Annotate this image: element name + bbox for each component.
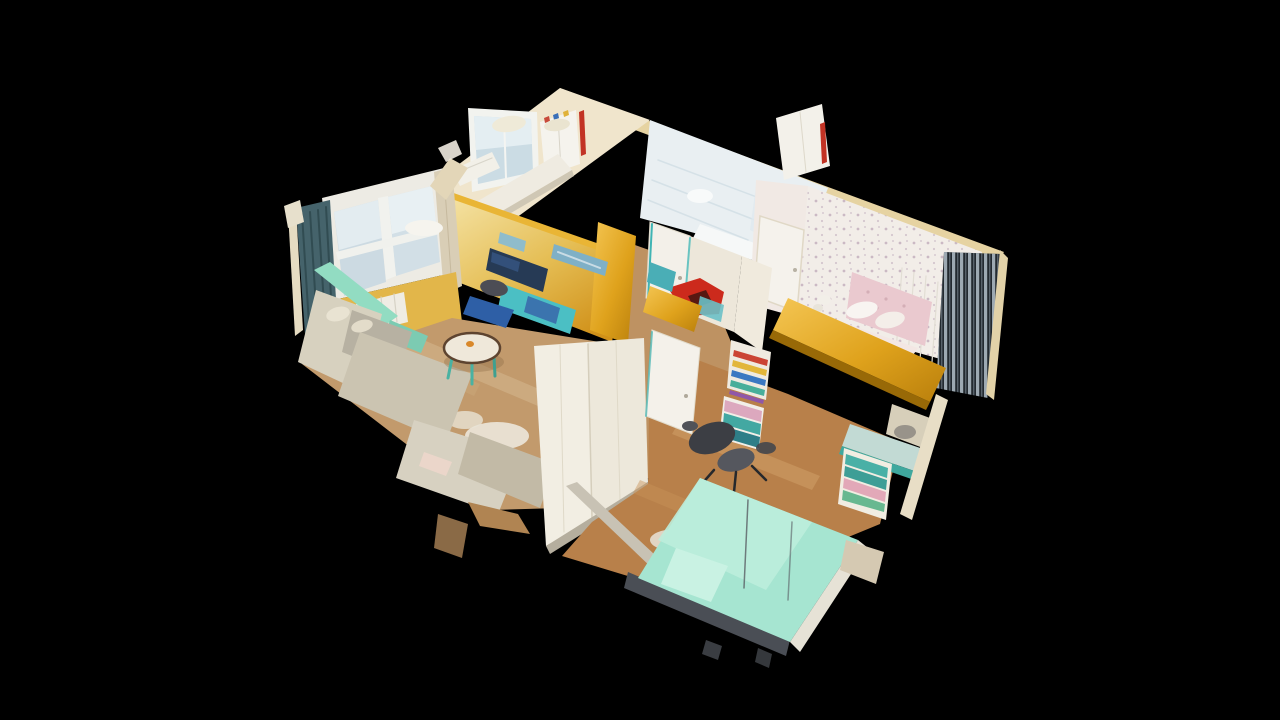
chair-clutter-1 [756,442,776,454]
bathroom-sink [687,189,713,203]
coffee-table-leg-3 [494,357,495,376]
hallway-door-handle [678,276,682,280]
headboard-tuft-3 [902,304,905,307]
chair-clutter-2 [682,421,698,431]
headboard-tuft-2 [884,297,887,300]
pendant-lamp [405,220,443,236]
desk-clutter-gray [894,425,916,439]
dollhouse-viewport[interactable] [0,0,1280,720]
dollhouse-3d-scene [0,0,1280,720]
headboard-tuft-1 [866,290,869,293]
bedroom-door-handle [793,268,797,272]
floor-jag-plank-2 [434,514,468,558]
hallway-door-lower [646,330,700,434]
kids-bed-leg-2 [755,648,772,668]
bedside-flowers [817,295,831,305]
hallway-door-lower-handle [684,394,688,398]
wardrobe-left-panel [534,342,592,546]
yellow-wall-gold-column [590,222,636,344]
torn-wall-fragment-2 [438,140,462,162]
coffee-table-deco [466,341,474,347]
kids-bed-leg-1 [702,640,722,660]
coffee-table-top [444,333,500,363]
